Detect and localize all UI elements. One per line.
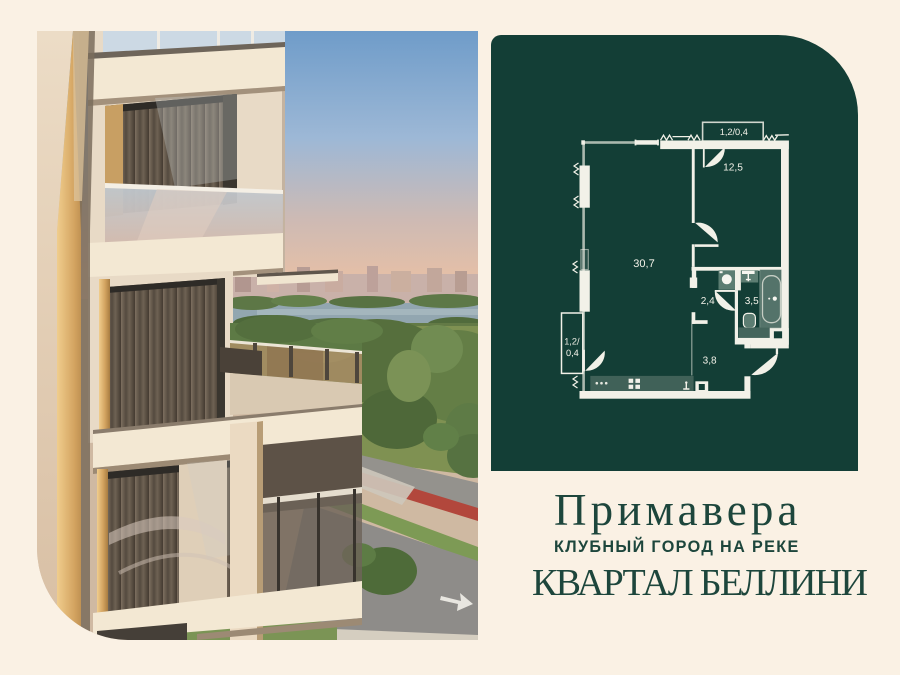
svg-text:1,2/0,4: 1,2/0,4: [720, 127, 748, 137]
svg-text:0,4: 0,4: [566, 348, 579, 358]
svg-text:30,7: 30,7: [633, 258, 654, 270]
svg-text:3,5: 3,5: [745, 296, 759, 307]
svg-text:12,5: 12,5: [723, 162, 743, 173]
svg-text:2,4: 2,4: [701, 296, 715, 307]
svg-text:1,2/: 1,2/: [564, 336, 580, 346]
svg-text:3,8: 3,8: [703, 355, 717, 366]
